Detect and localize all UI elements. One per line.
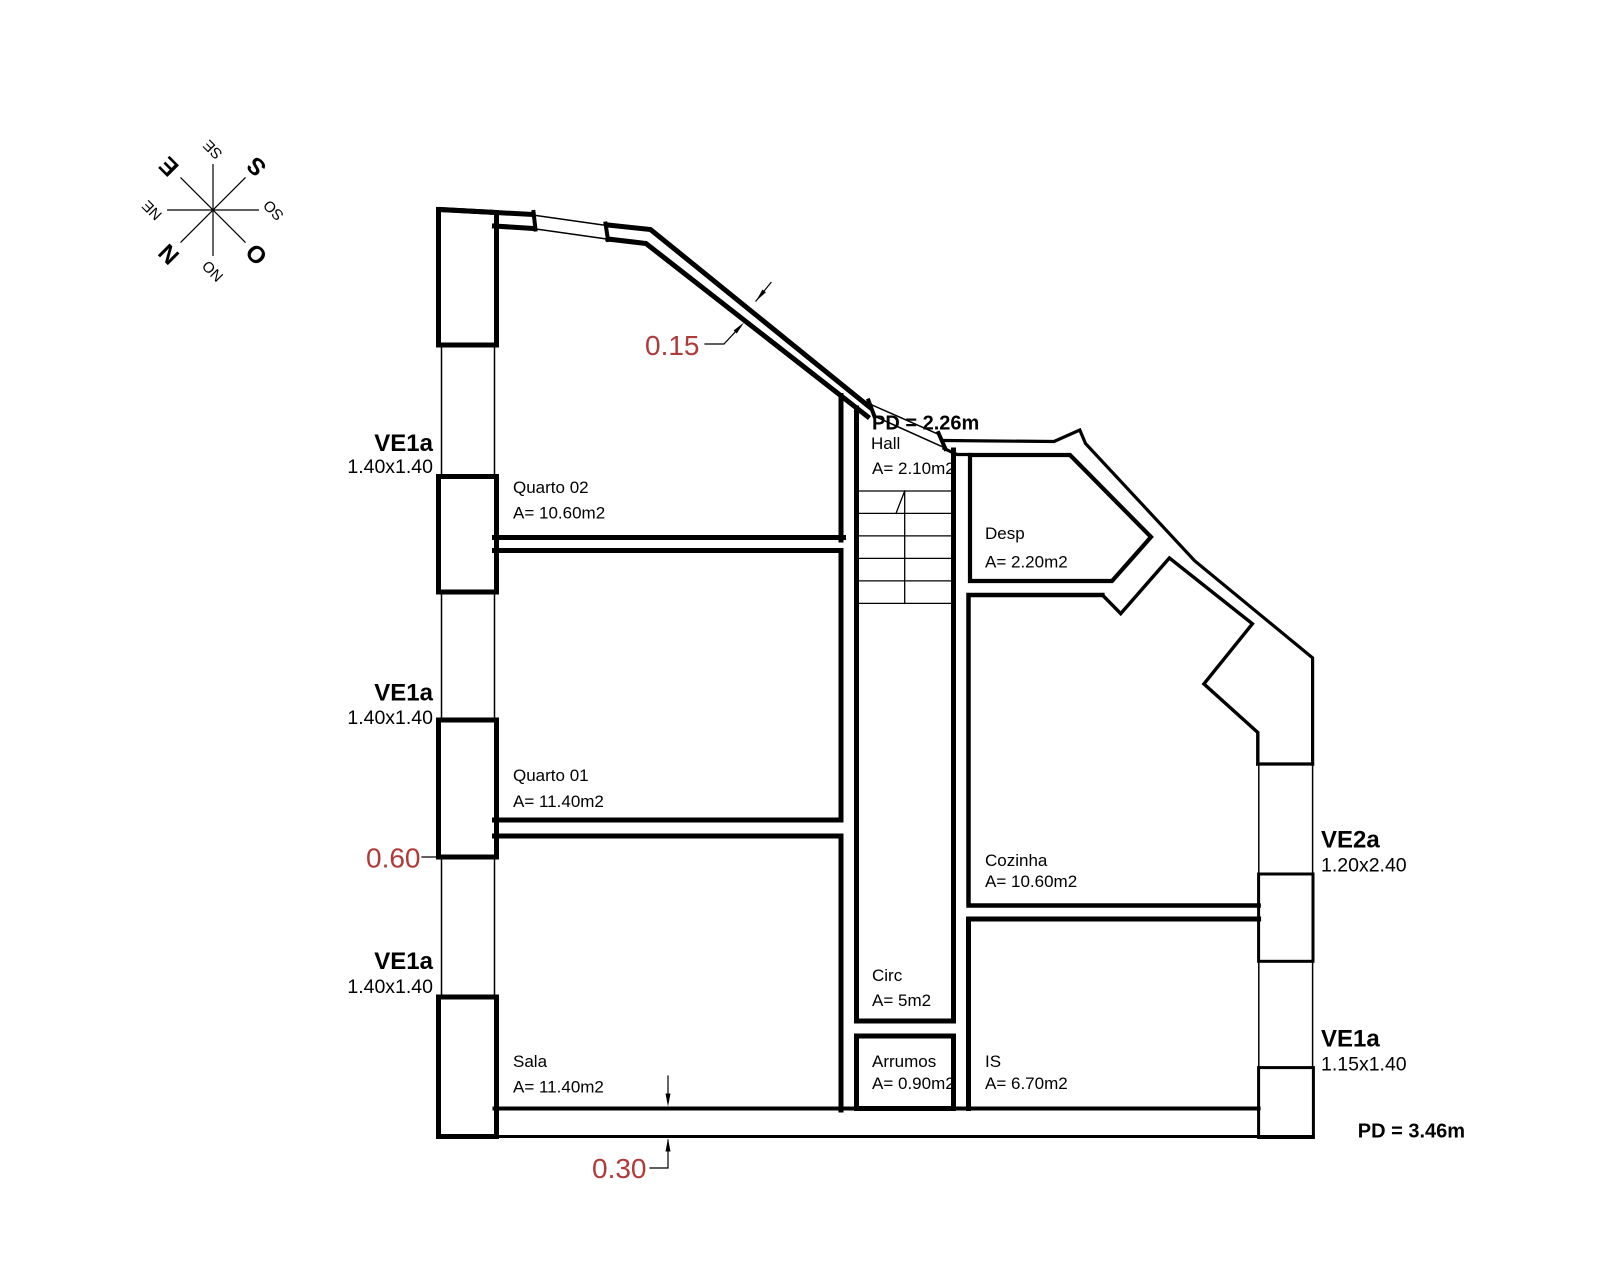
svg-text:Sala: Sala	[513, 1052, 548, 1071]
svg-text:VE1a: VE1a	[1321, 1026, 1380, 1053]
svg-text:0.60: 0.60	[366, 843, 421, 874]
svg-text:Hall: Hall	[871, 434, 900, 453]
svg-text:IS: IS	[985, 1052, 1001, 1071]
svg-text:1.15x1.40: 1.15x1.40	[1321, 1054, 1407, 1076]
svg-text:1.40x1.40: 1.40x1.40	[347, 456, 433, 478]
svg-text:1.40x1.40: 1.40x1.40	[347, 976, 433, 998]
svg-text:Desp: Desp	[985, 524, 1025, 543]
svg-text:VE1a: VE1a	[374, 948, 433, 975]
svg-text:A= 10.60m2: A= 10.60m2	[985, 872, 1077, 891]
svg-text:0.30: 0.30	[592, 1153, 647, 1184]
svg-text:PD = 2.26m: PD = 2.26m	[872, 413, 979, 435]
svg-text:A= 0.90m2: A= 0.90m2	[872, 1074, 955, 1093]
svg-text:0.15: 0.15	[645, 330, 700, 361]
svg-text:A= 5m2: A= 5m2	[872, 991, 931, 1010]
svg-text:A= 2.20m2: A= 2.20m2	[985, 553, 1068, 572]
svg-text:PD = 3.46m: PD = 3.46m	[1358, 1121, 1465, 1143]
svg-text:Arrumos: Arrumos	[872, 1052, 936, 1071]
svg-text:A= 2.10m2: A= 2.10m2	[872, 459, 955, 478]
svg-text:A= 11.40m2: A= 11.40m2	[513, 1078, 604, 1097]
svg-text:VE1a: VE1a	[374, 680, 433, 707]
svg-text:A= 6.70m2: A= 6.70m2	[985, 1074, 1068, 1093]
svg-text:Cozinha: Cozinha	[985, 851, 1048, 870]
svg-text:A= 11.40m2: A= 11.40m2	[513, 792, 604, 811]
svg-text:Quarto 01: Quarto 01	[513, 766, 589, 785]
svg-text:1.40x1.40: 1.40x1.40	[347, 707, 433, 729]
svg-text:VE1a: VE1a	[374, 430, 433, 457]
svg-text:1.20x2.40: 1.20x2.40	[1321, 855, 1407, 877]
svg-text:Quarto 02: Quarto 02	[513, 478, 589, 497]
svg-text:A= 10.60m2: A= 10.60m2	[513, 504, 605, 523]
svg-text:Circ: Circ	[872, 966, 903, 985]
svg-text:VE2a: VE2a	[1321, 827, 1380, 854]
